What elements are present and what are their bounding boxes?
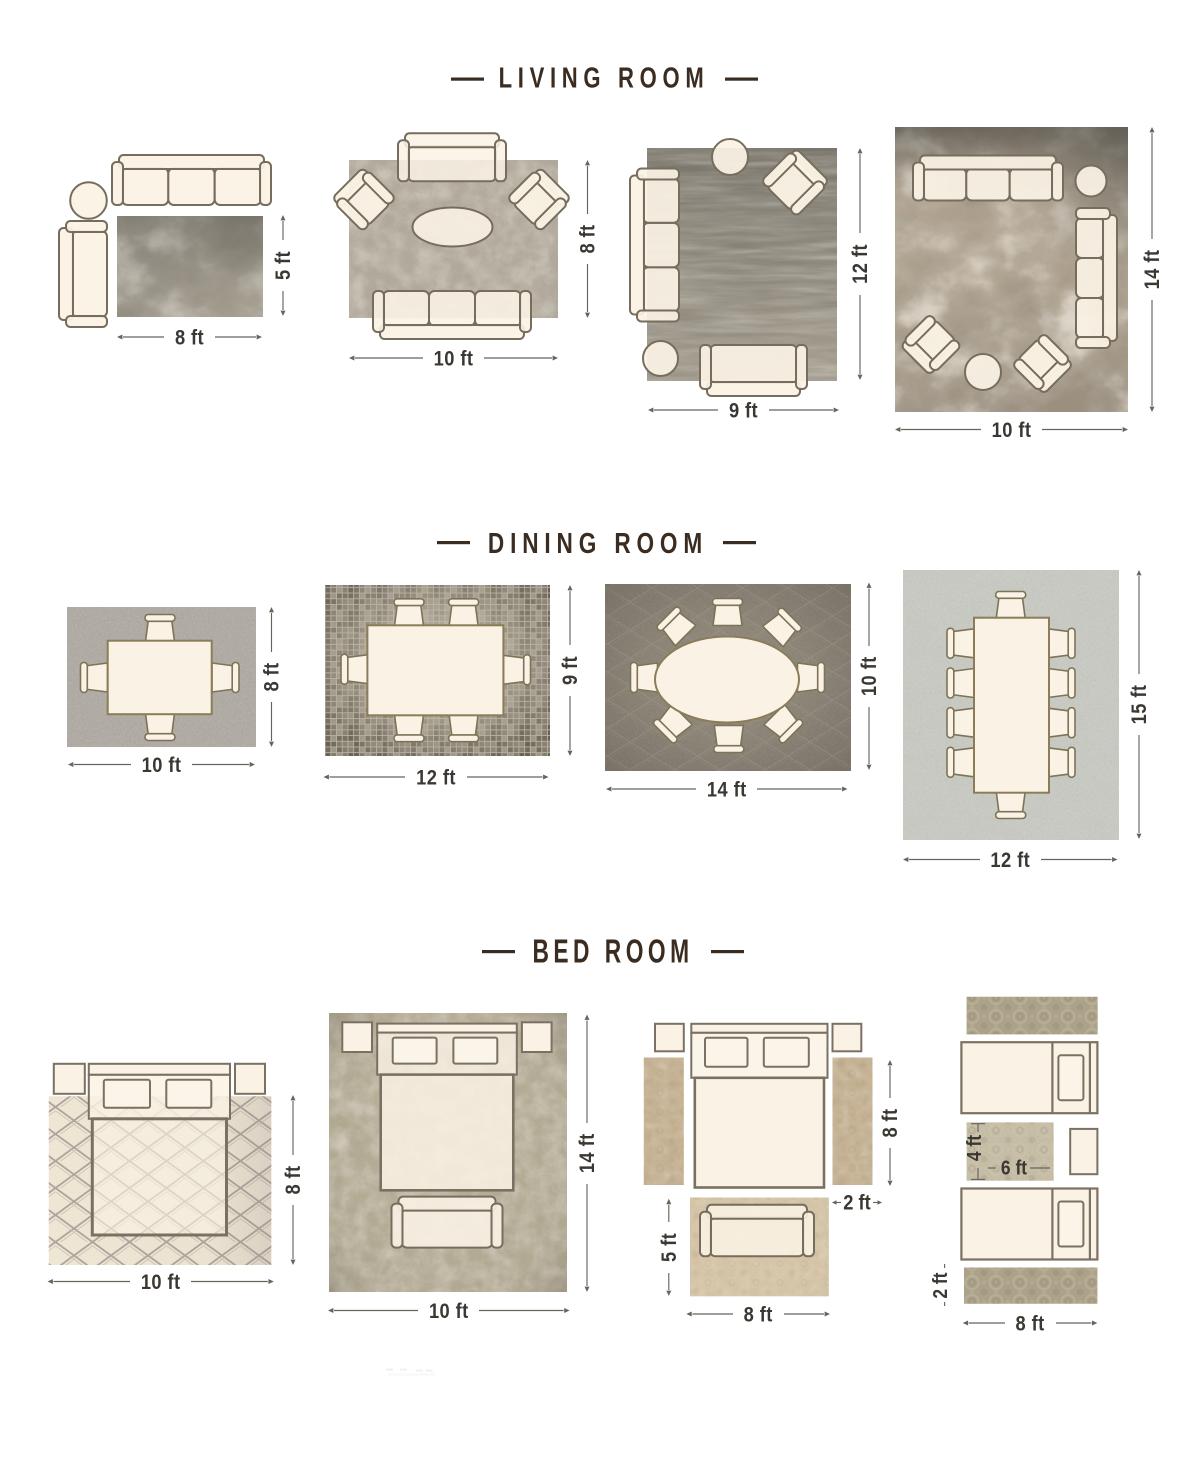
svg-text:14 ft: 14 ft [707, 778, 747, 802]
svg-text:12 ft: 12 ft [416, 766, 456, 790]
svg-text:8 ft: 8 ft [576, 224, 600, 253]
svg-text:10 ft: 10 ft [141, 1271, 181, 1295]
svg-text:9 ft: 9 ft [559, 656, 583, 685]
svg-text:LIVING ROOM: LIVING ROOM [499, 63, 710, 95]
svg-text:DINING ROOM: DINING ROOM [488, 526, 708, 559]
svg-text:5 ft: 5 ft [657, 1233, 681, 1262]
svg-text:4 ft: 4 ft [964, 1134, 987, 1161]
svg-text:8 ft: 8 ft [282, 1165, 306, 1194]
svg-text:6 ft: 6 ft [1001, 1157, 1028, 1180]
svg-text:14 ft: 14 ft [1141, 250, 1165, 290]
svg-text:BED ROOM: BED ROOM [532, 933, 693, 970]
svg-text:8 ft: 8 ft [1016, 1312, 1045, 1336]
svg-text:10 ft: 10 ft [429, 1300, 469, 1324]
svg-text:8 ft: 8 ft [744, 1303, 773, 1327]
svg-text:2 ft: 2 ft [843, 1191, 871, 1215]
svg-text:8 ft: 8 ft [879, 1108, 903, 1137]
svg-text:14 ft: 14 ft [576, 1133, 600, 1173]
svg-text:8 ft: 8 ft [175, 326, 204, 350]
svg-text:12 ft: 12 ft [990, 849, 1030, 873]
svg-text:12 ft: 12 ft [849, 244, 873, 284]
svg-text:10 ft: 10 ft [142, 754, 182, 778]
svg-text:10 ft: 10 ft [434, 347, 474, 371]
svg-text:5 ft: 5 ft [272, 251, 296, 280]
svg-text:9 ft: 9 ft [729, 399, 758, 423]
svg-text:10 ft: 10 ft [858, 656, 882, 696]
svg-text:2 ft: 2 ft [930, 1272, 953, 1299]
svg-text:15 ft: 15 ft [1128, 685, 1152, 725]
svg-text:8 ft: 8 ft [260, 662, 284, 691]
svg-text:10 ft: 10 ft [992, 419, 1032, 443]
